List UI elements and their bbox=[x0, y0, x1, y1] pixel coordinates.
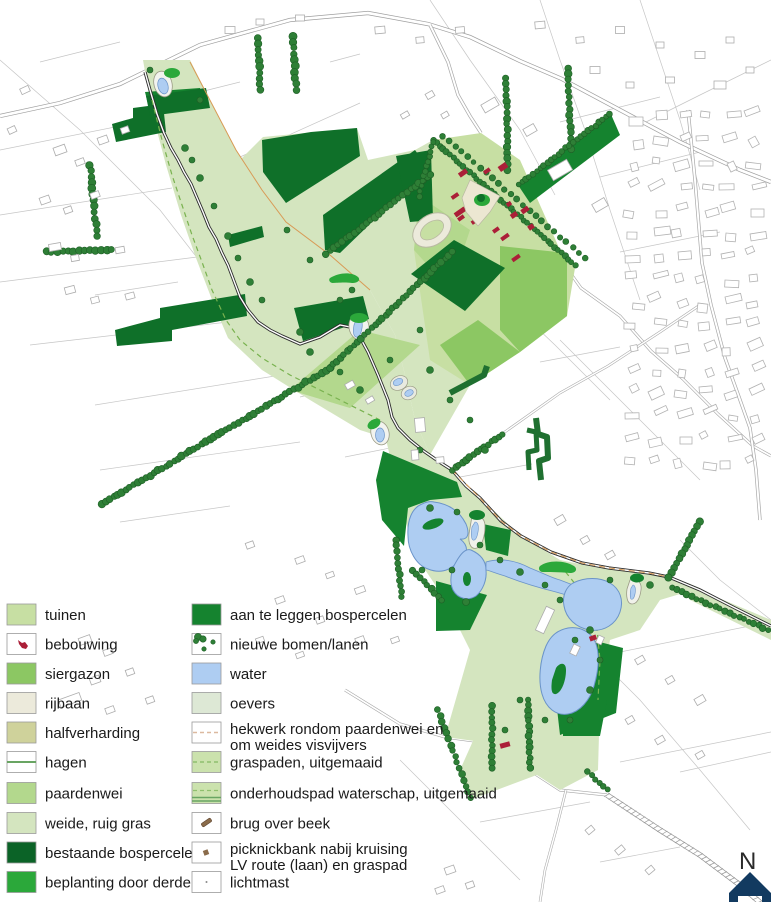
svg-text:picknickbank nabij kruising: picknickbank nabij kruising bbox=[230, 841, 408, 858]
svg-text:N: N bbox=[739, 848, 756, 875]
svg-text:bebouwing: bebouwing bbox=[45, 637, 118, 654]
svg-text:LV route (laan) en graspad: LV route (laan) en graspad bbox=[230, 857, 407, 874]
svg-text:om weides visvijvers: om weides visvijvers bbox=[230, 737, 367, 754]
svg-text:weide, ruig gras: weide, ruig gras bbox=[44, 816, 151, 833]
svg-text:graspaden, uitgemaaid: graspaden, uitgemaaid bbox=[230, 755, 383, 772]
svg-text:hekwerk rondom paardenwei en: hekwerk rondom paardenwei en bbox=[230, 721, 443, 738]
svg-text:brug over beek: brug over beek bbox=[230, 816, 331, 833]
svg-text:hagen: hagen bbox=[45, 755, 87, 772]
svg-text:onderhoudspad waterschap, uitg: onderhoudspad waterschap, uitgemaaid bbox=[230, 786, 497, 803]
svg-text:siergazon: siergazon bbox=[45, 666, 110, 683]
svg-text:nieuwe bomen/lanen: nieuwe bomen/lanen bbox=[230, 637, 368, 654]
svg-text:water: water bbox=[229, 666, 267, 683]
svg-text:bestaande bospercelen: bestaande bospercelen bbox=[45, 845, 201, 862]
svg-text:aan te leggen bospercelen: aan te leggen bospercelen bbox=[230, 607, 407, 624]
svg-text:oevers: oevers bbox=[230, 696, 275, 713]
svg-text:tuinen: tuinen bbox=[45, 607, 86, 624]
svg-text:paardenwei: paardenwei bbox=[45, 786, 123, 803]
svg-text:lichtmast: lichtmast bbox=[230, 875, 290, 892]
svg-text:halfverharding: halfverharding bbox=[45, 725, 140, 742]
svg-text:rijbaan: rijbaan bbox=[45, 696, 90, 713]
svg-text:beplanting door derden: beplanting door derden bbox=[45, 875, 199, 892]
